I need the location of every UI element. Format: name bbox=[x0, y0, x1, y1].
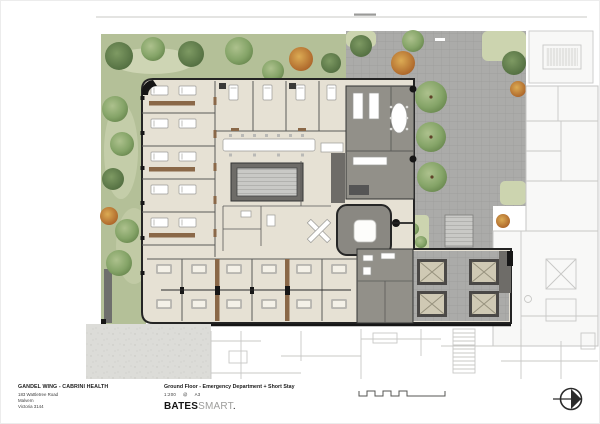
lift-lobby bbox=[357, 249, 513, 323]
lift bbox=[417, 259, 447, 285]
logo-bold: BATES bbox=[164, 401, 198, 412]
concrete-paving bbox=[86, 324, 211, 379]
service-core bbox=[231, 163, 303, 201]
north-arrow-icon bbox=[549, 384, 589, 414]
corridor-dark bbox=[331, 153, 345, 203]
meeting-table bbox=[391, 103, 407, 133]
batessmart-logo: BATESSMART. bbox=[164, 401, 295, 412]
address-line-3: Victoria 3144 bbox=[18, 404, 108, 410]
lawn-patch bbox=[500, 181, 526, 205]
stair bbox=[237, 168, 297, 196]
entry-stairs bbox=[445, 215, 473, 247]
drawing-title: Ground Floor - Emergency Department + Sh… bbox=[164, 384, 295, 390]
tree bbox=[106, 250, 132, 276]
drawing-sheet: GANDEL WING - CABRINI HEALTH 183 Wattlet… bbox=[0, 0, 600, 424]
lift bbox=[469, 259, 499, 285]
staff-suite-east bbox=[346, 86, 414, 199]
tree bbox=[105, 42, 133, 70]
bench bbox=[435, 38, 445, 41]
title-block-drawing: Ground Floor - Emergency Department + Sh… bbox=[164, 384, 295, 412]
title-block-project: GANDEL WING - CABRINI HEALTH 183 Wattlet… bbox=[18, 384, 108, 411]
entry-door bbox=[507, 251, 513, 266]
tree bbox=[350, 35, 372, 57]
sheet-size: A3 bbox=[195, 392, 201, 397]
south-site bbox=[86, 324, 598, 379]
garden-ramp-landing bbox=[101, 319, 106, 324]
drawing-scale: 1:200@A3 bbox=[164, 392, 295, 397]
tree bbox=[415, 236, 427, 248]
site-boundary-line bbox=[96, 14, 587, 18]
tree bbox=[102, 96, 128, 122]
scale-value: 1:200 bbox=[164, 392, 176, 397]
tree-autumn bbox=[289, 47, 313, 71]
lift bbox=[469, 291, 499, 317]
scale-bar-icon bbox=[357, 387, 449, 403]
project-name: GANDEL WING - CABRINI HEALTH bbox=[18, 384, 108, 390]
tree-autumn bbox=[496, 214, 510, 228]
tree-autumn bbox=[510, 81, 526, 97]
tree bbox=[502, 51, 526, 75]
tree bbox=[225, 37, 253, 65]
tree bbox=[110, 132, 134, 156]
lift bbox=[417, 291, 447, 317]
tree-autumn bbox=[100, 207, 118, 225]
garden-ramp bbox=[104, 269, 112, 323]
tree-autumn bbox=[391, 51, 415, 75]
tree bbox=[402, 30, 424, 52]
scale-separator: @ bbox=[183, 392, 188, 397]
scanner bbox=[354, 220, 376, 242]
floor-plan-drawing bbox=[1, 1, 600, 381]
logo-light: SMART bbox=[198, 401, 233, 412]
courtyard-tree-row bbox=[415, 81, 447, 192]
tree bbox=[115, 219, 139, 243]
tree bbox=[102, 168, 124, 190]
logo-period: . bbox=[233, 401, 236, 412]
tree bbox=[321, 53, 341, 73]
tree bbox=[178, 41, 204, 67]
tree bbox=[141, 37, 165, 61]
